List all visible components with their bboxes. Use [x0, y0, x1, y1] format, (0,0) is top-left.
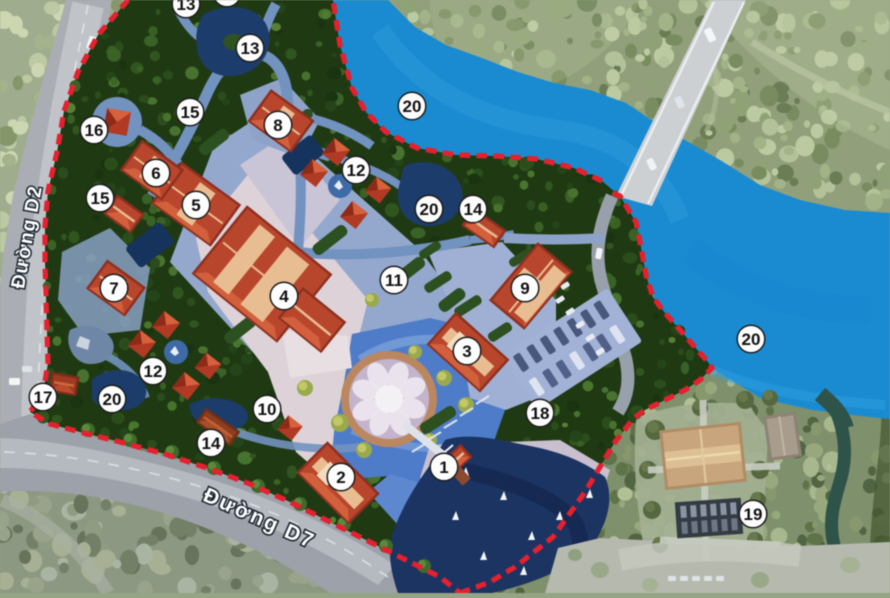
svg-text:8: 8 — [273, 116, 282, 135]
svg-text:9: 9 — [520, 279, 529, 298]
svg-text:12: 12 — [347, 161, 366, 180]
svg-text:13: 13 — [177, 0, 196, 14]
svg-text:10: 10 — [258, 400, 277, 419]
svg-text:13: 13 — [241, 39, 260, 58]
svg-text:20: 20 — [218, 0, 237, 3]
svg-text:2: 2 — [336, 468, 345, 487]
svg-text:3: 3 — [462, 342, 471, 361]
svg-text:20: 20 — [420, 200, 439, 219]
svg-text:20: 20 — [103, 390, 122, 409]
svg-text:1: 1 — [439, 458, 448, 477]
svg-text:18: 18 — [531, 404, 550, 423]
svg-text:19: 19 — [744, 505, 763, 524]
svg-text:20: 20 — [742, 330, 761, 349]
svg-text:5: 5 — [191, 196, 200, 215]
svg-text:4: 4 — [279, 287, 289, 306]
svg-text:20: 20 — [403, 97, 422, 116]
svg-text:12: 12 — [144, 362, 163, 381]
svg-text:11: 11 — [385, 271, 403, 290]
svg-text:15: 15 — [181, 103, 200, 122]
svg-text:17: 17 — [34, 388, 53, 407]
svg-text:15: 15 — [91, 189, 110, 208]
svg-text:6: 6 — [151, 164, 160, 183]
svg-text:14: 14 — [464, 200, 483, 219]
svg-text:14: 14 — [202, 434, 221, 453]
svg-text:7: 7 — [109, 279, 118, 298]
svg-text:16: 16 — [85, 121, 104, 140]
